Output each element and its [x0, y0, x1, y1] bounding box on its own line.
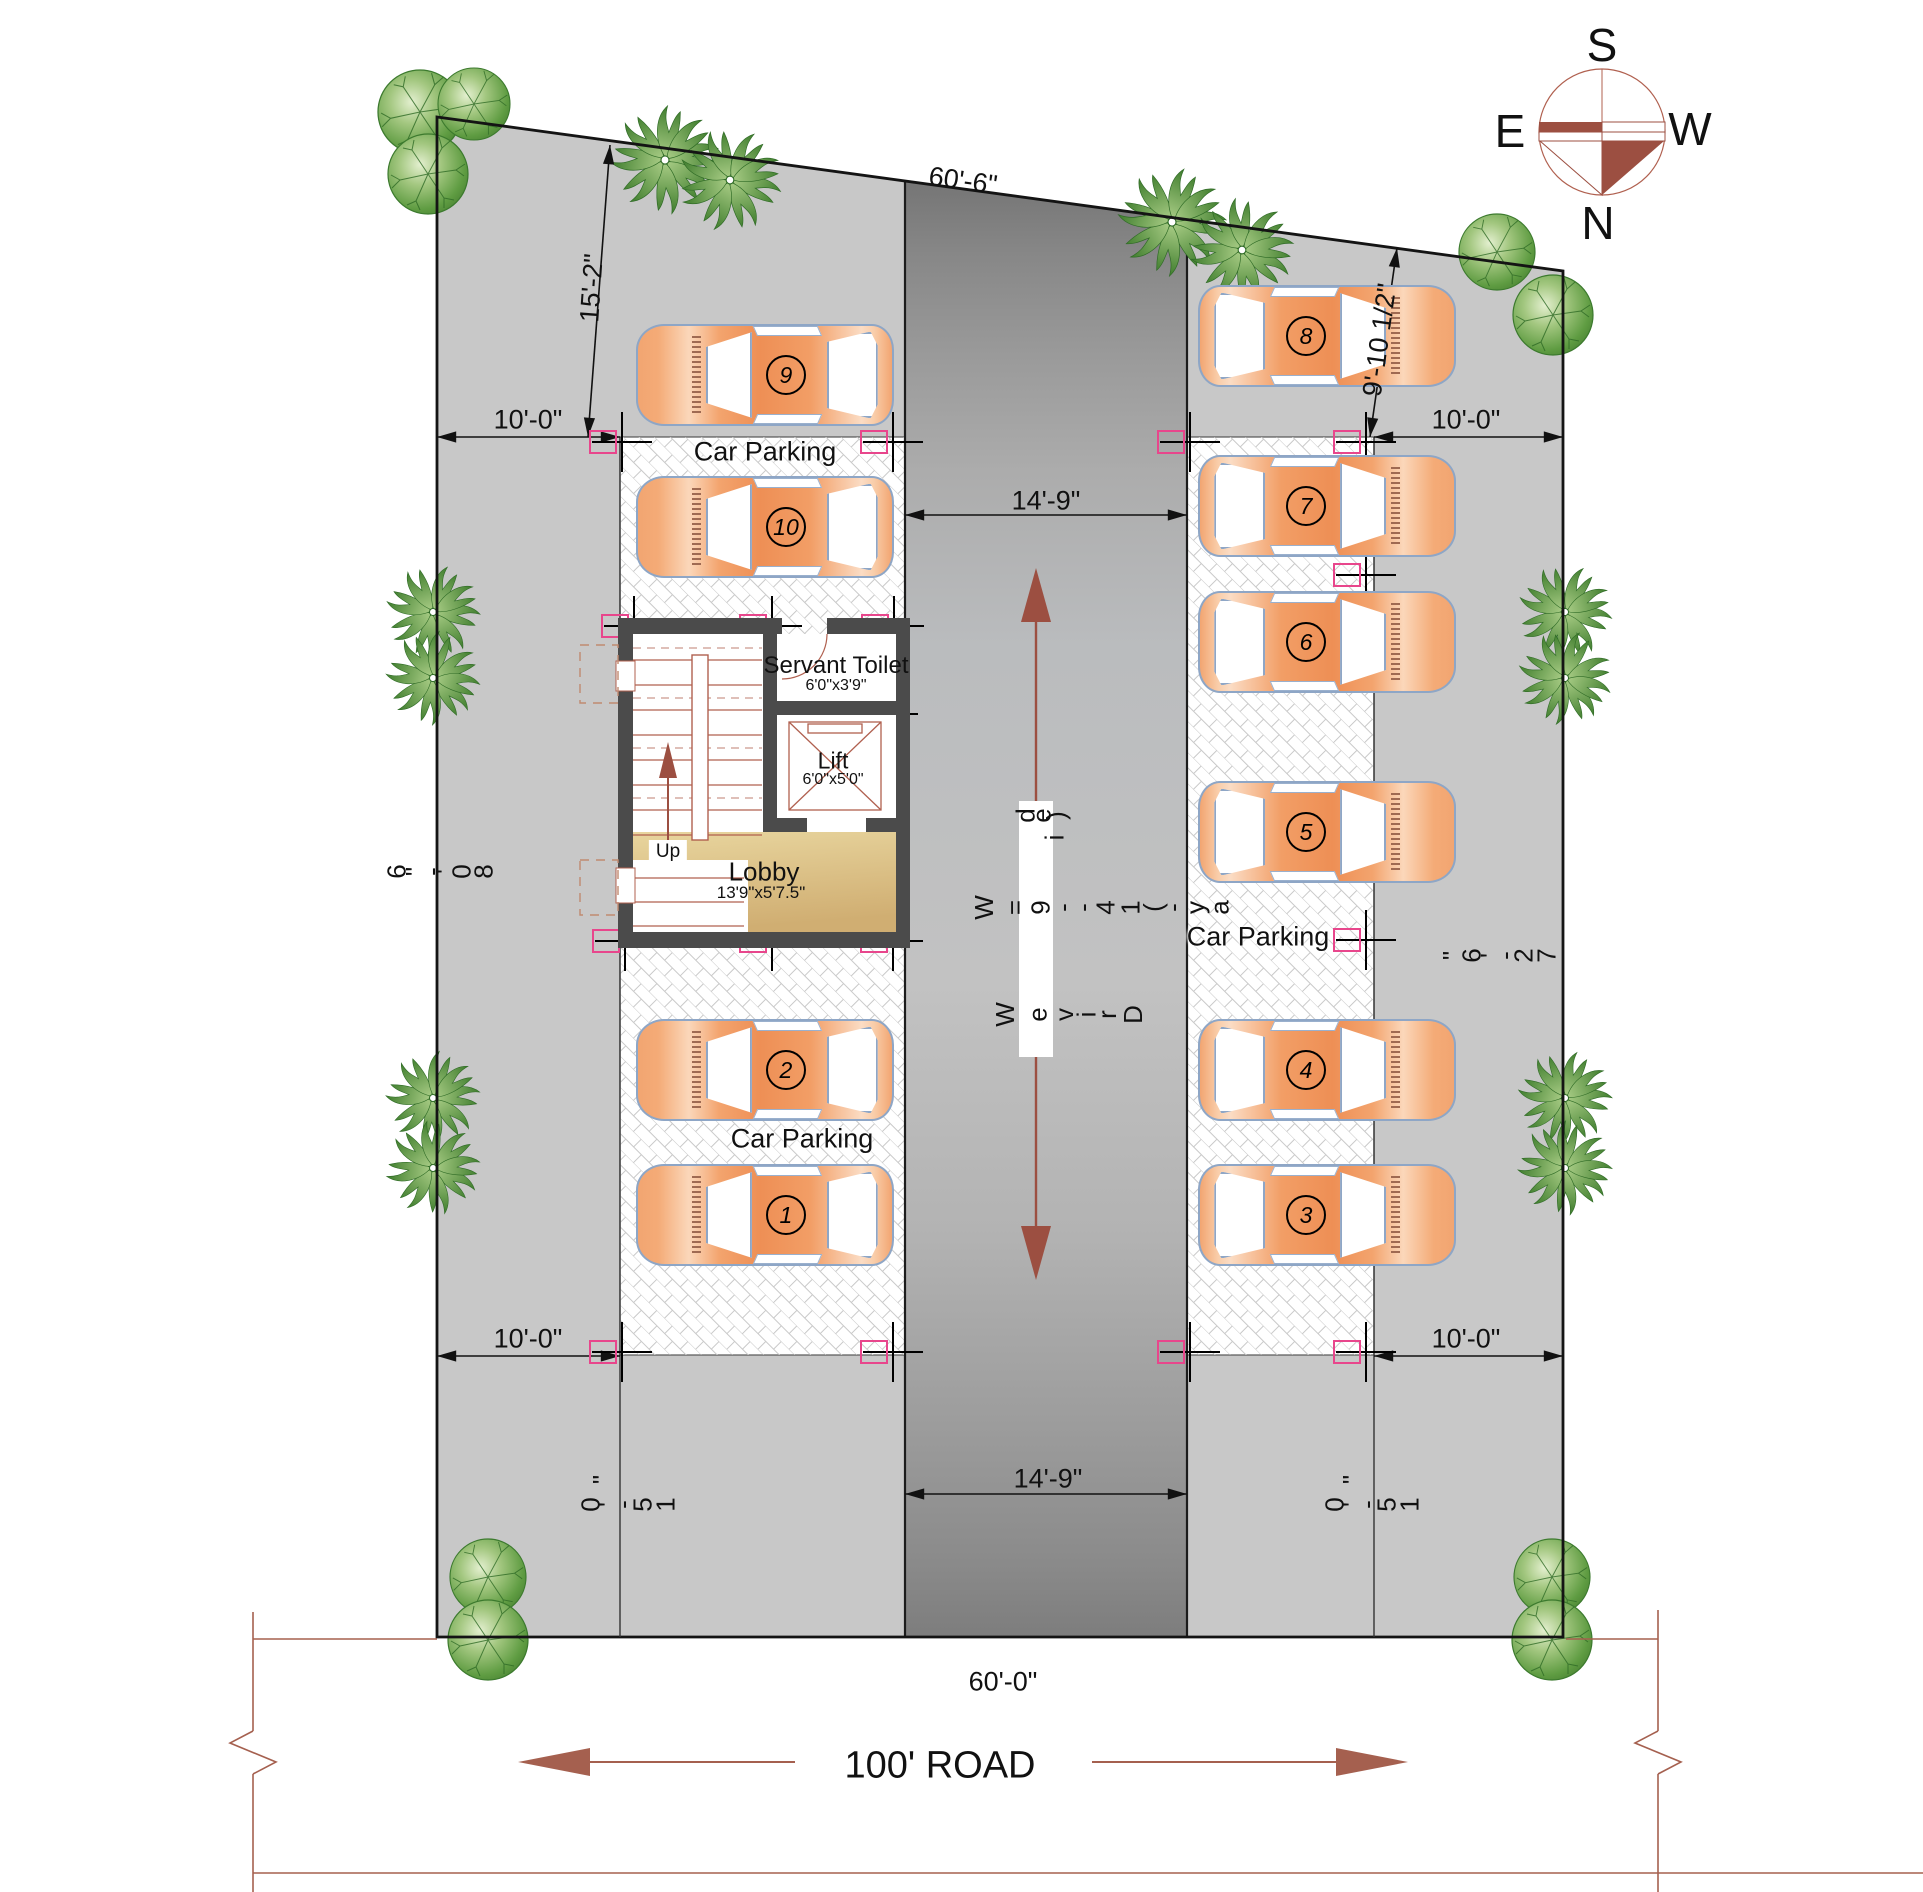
car-spot-1: 1: [634, 1162, 896, 1268]
break-line: [230, 1731, 276, 1774]
site-plan-page: 9 10 2 1 8 7 6 5 4 3 Car Parking Car Par…: [0, 0, 1923, 1892]
dim-15ft-2in-slant: 15'-2": [574, 253, 610, 324]
car-spot-5: 5: [1196, 779, 1458, 885]
compass-south-label: S: [1587, 18, 1618, 72]
parking-number-badge: 7: [1286, 486, 1326, 526]
dim-10ft-top-right: 10'-0": [1432, 405, 1501, 436]
compass-east-label: E: [1495, 104, 1526, 158]
road-label: 100' ROAD: [844, 1745, 1035, 1788]
parking-number-badge: 8: [1286, 316, 1326, 356]
parking-number-badge: 9: [766, 355, 806, 395]
dim-right-72ft-glyphs: "6'-27: [1448, 940, 1562, 971]
car-spot-10: 10: [634, 474, 896, 580]
dim-driveway-bottom: 14'-9": [1014, 1464, 1083, 1495]
dim-10ft-top-left: 10'-0": [494, 405, 563, 436]
break-line: [1635, 1731, 1681, 1774]
arrow-right-icon: [1092, 1748, 1408, 1776]
car-spot-7: 7: [1196, 453, 1458, 559]
driveway-label-glyphs-bottom: WevirD: [993, 999, 1156, 1030]
dim-left-80ft-glyphs: 6"-'08: [390, 856, 498, 887]
car-spot-4: 4: [1196, 1017, 1458, 1123]
parking-number-badge: 2: [766, 1050, 806, 1090]
lobby-size: 13'9"x5'7.5": [717, 883, 806, 903]
site-plan-drawing: [0, 0, 1923, 1892]
car-top-view-icon: [1196, 1162, 1458, 1268]
compass-icon: [1539, 69, 1665, 195]
car-top-view-icon: [1196, 1017, 1458, 1123]
driveway-label-glyphs-mid: W=9--41(-ya: [972, 892, 1238, 923]
car-top-view-icon: [1196, 453, 1458, 559]
car-top-view-icon: [1196, 589, 1458, 695]
stair-rail: [692, 655, 708, 840]
car-spot-6: 6: [1196, 589, 1458, 695]
dim-15ft-bl-row: 0'-51: [584, 1489, 681, 1520]
parking-number-badge: 5: [1286, 812, 1326, 852]
parking-number-badge: 1: [766, 1195, 806, 1235]
dim-plot-bottom: 60'-0": [969, 1667, 1038, 1698]
dim-10ft-bottom-left: 10'-0": [494, 1324, 563, 1355]
car-spot-9: 9: [634, 322, 896, 428]
car-spot-8: 8: [1196, 283, 1458, 389]
parking-number-badge: 10: [766, 507, 806, 547]
car-parking-label-right: Car Parking: [1187, 922, 1330, 953]
driveway-label-glyphs-top-b: i: [1052, 822, 1060, 853]
servant-toilet-size: 6'0"x3'9": [805, 677, 866, 695]
car-top-view-icon: [1196, 283, 1458, 389]
servant-toilet-name: Servant Toilet: [764, 652, 909, 680]
parking-number-badge: 6: [1286, 622, 1326, 662]
lift-size: 6'0"x5'0": [802, 771, 863, 789]
compass-west-label: W: [1668, 102, 1711, 156]
compass-north-label: N: [1581, 196, 1614, 250]
parking-number-badge: 4: [1286, 1050, 1326, 1090]
car-top-view-icon: [1196, 779, 1458, 885]
arrow-left-icon: [518, 1748, 795, 1776]
parking-number-badge: 3: [1286, 1195, 1326, 1235]
car-parking-label-top-left: Car Parking: [694, 437, 837, 468]
dim-driveway-top: 14'-9": [1012, 486, 1081, 517]
dim-15ft-br-row: 0'-51: [1328, 1489, 1425, 1520]
dim-10ft-bottom-right: 10'-0": [1432, 1324, 1501, 1355]
stairs-up-label: Up: [649, 840, 687, 864]
car-spot-3: 3: [1196, 1162, 1458, 1268]
car-parking-label-bottom-left: Car Parking: [731, 1124, 874, 1155]
car-spot-2: 2: [634, 1017, 896, 1123]
